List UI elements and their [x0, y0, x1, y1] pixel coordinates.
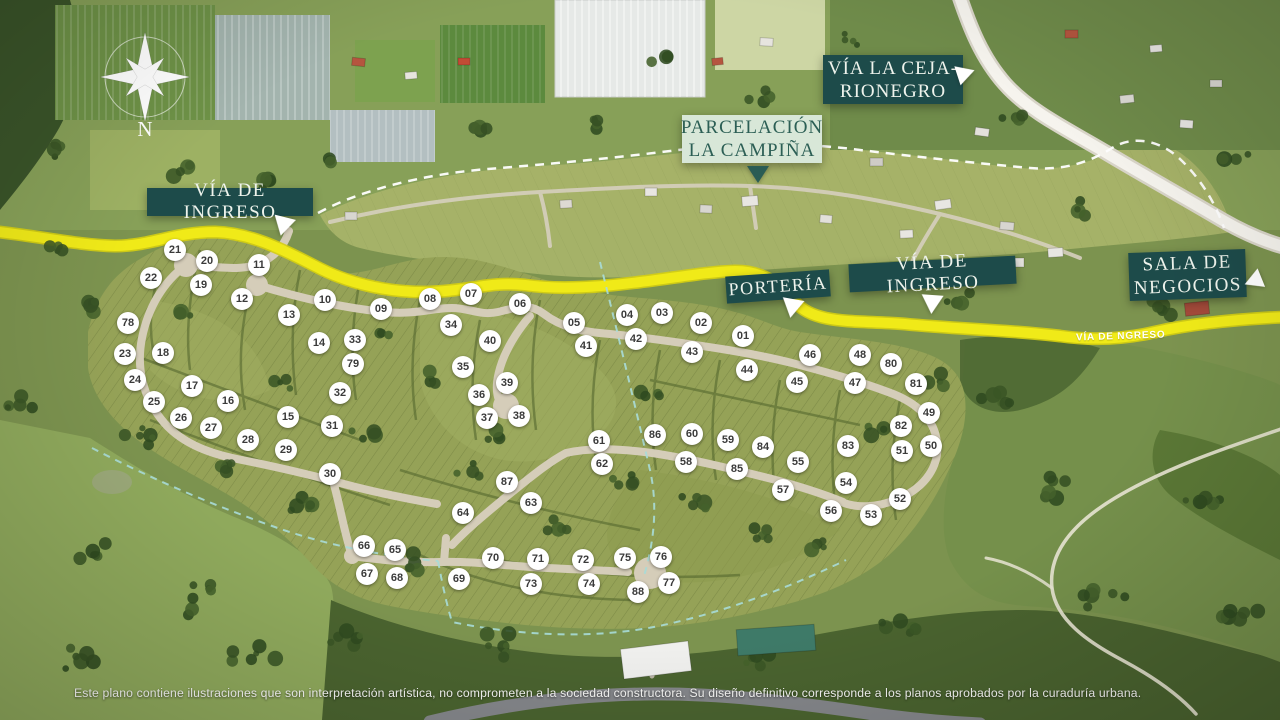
- lot-marker-02: 02: [690, 312, 712, 334]
- lot-marker-50: 50: [920, 435, 942, 457]
- lot-marker-52: 52: [889, 488, 911, 510]
- lot-marker-74: 74: [578, 573, 600, 595]
- label-via-la-ceja-rionegro: VÍA LA CEJA- RIONEGRO: [823, 55, 963, 104]
- lot-marker-41: 41: [575, 335, 597, 357]
- lot-marker-09: 09: [370, 298, 392, 320]
- lot-marker-44: 44: [736, 359, 758, 381]
- lot-marker-11: 11: [248, 254, 270, 276]
- label-text: SALA DE: [1142, 250, 1232, 276]
- aerial-map-background: N: [0, 0, 1280, 720]
- lot-marker-66: 66: [353, 535, 375, 557]
- lot-marker-06: 06: [509, 293, 531, 315]
- lot-marker-61: 61: [588, 430, 610, 452]
- lot-marker-53: 53: [860, 504, 882, 526]
- lot-marker-13: 13: [278, 304, 300, 326]
- lot-marker-12: 12: [231, 288, 253, 310]
- lot-marker-08: 08: [419, 288, 441, 310]
- lot-marker-67: 67: [356, 563, 378, 585]
- lot-marker-37: 37: [476, 407, 498, 429]
- label-text: RIONEGRO: [840, 80, 946, 103]
- lot-marker-80: 80: [880, 353, 902, 375]
- lot-marker-03: 03: [651, 302, 673, 324]
- lot-marker-18: 18: [152, 342, 174, 364]
- lot-marker-78: 78: [117, 312, 139, 334]
- lot-marker-57: 57: [772, 479, 794, 501]
- lot-marker-55: 55: [787, 451, 809, 473]
- lot-marker-49: 49: [918, 402, 940, 424]
- label-text: LA CAMPIÑA: [689, 139, 816, 162]
- lot-marker-46: 46: [799, 344, 821, 366]
- lot-marker-77: 77: [658, 572, 680, 594]
- lot-marker-20: 20: [196, 250, 218, 272]
- lot-marker-35: 35: [452, 356, 474, 378]
- lot-marker-47: 47: [844, 372, 866, 394]
- lot-marker-21: 21: [164, 239, 186, 261]
- lot-marker-42: 42: [625, 328, 647, 350]
- lot-marker-60: 60: [681, 423, 703, 445]
- lot-marker-73: 73: [520, 573, 542, 595]
- label-text: NEGOCIOS: [1134, 273, 1243, 300]
- lot-marker-07: 07: [460, 283, 482, 305]
- lot-marker-25: 25: [143, 391, 165, 413]
- lot-marker-24: 24: [124, 369, 146, 391]
- lot-marker-34: 34: [440, 314, 462, 336]
- lot-marker-45: 45: [786, 371, 808, 393]
- label-via-de-ingreso-top: VÍA DE INGRESO: [147, 188, 313, 216]
- label-text: PORTERÍA: [728, 273, 828, 301]
- lot-marker-10: 10: [314, 289, 336, 311]
- compass-north-letter: N: [137, 117, 152, 141]
- lot-marker-75: 75: [614, 547, 636, 569]
- label-via-de-ingreso-mid: VÍA DE INGRESO: [848, 256, 1016, 293]
- lot-marker-36: 36: [468, 384, 490, 406]
- lot-marker-40: 40: [479, 330, 501, 352]
- lot-marker-51: 51: [891, 440, 913, 462]
- lot-marker-87: 87: [496, 471, 518, 493]
- lot-marker-68: 68: [386, 567, 408, 589]
- lot-marker-64: 64: [452, 502, 474, 524]
- label-text: VÍA DE INGRESO: [848, 248, 1017, 301]
- lot-marker-04: 04: [616, 304, 638, 326]
- lot-marker-19: 19: [190, 274, 212, 296]
- lot-marker-29: 29: [275, 439, 297, 461]
- lot-marker-14: 14: [308, 332, 330, 354]
- lot-marker-43: 43: [681, 341, 703, 363]
- lot-marker-26: 26: [170, 407, 192, 429]
- lot-marker-05: 05: [563, 312, 585, 334]
- lot-marker-82: 82: [890, 415, 912, 437]
- lot-marker-65: 65: [384, 539, 406, 561]
- lot-marker-58: 58: [675, 451, 697, 473]
- lot-marker-27: 27: [200, 417, 222, 439]
- lot-marker-59: 59: [717, 429, 739, 451]
- lot-marker-38: 38: [508, 405, 530, 427]
- parcelacion-pointer-icon: [747, 166, 769, 183]
- lot-marker-48: 48: [849, 344, 871, 366]
- lot-marker-69: 69: [448, 568, 470, 590]
- lot-marker-70: 70: [482, 547, 504, 569]
- via-ingreso-arrow-icon: [920, 294, 943, 314]
- lot-marker-85: 85: [726, 458, 748, 480]
- lot-marker-84: 84: [752, 436, 774, 458]
- lot-marker-15: 15: [277, 406, 299, 428]
- label-text: PARCELACIÓN: [681, 116, 823, 139]
- lot-marker-01: 01: [732, 325, 754, 347]
- label-text: VÍA LA CEJA-: [828, 57, 958, 80]
- lot-marker-72: 72: [572, 549, 594, 571]
- lot-marker-17: 17: [181, 375, 203, 397]
- lot-marker-88: 88: [627, 581, 649, 603]
- lot-marker-39: 39: [496, 372, 518, 394]
- lot-marker-22: 22: [140, 267, 162, 289]
- disclaimer-text: Este plano contiene ilustraciones que so…: [74, 686, 1244, 700]
- lot-marker-79: 79: [342, 353, 364, 375]
- lot-marker-30: 30: [319, 463, 341, 485]
- lot-marker-33: 33: [344, 329, 366, 351]
- lot-marker-56: 56: [820, 500, 842, 522]
- lot-marker-76: 76: [650, 546, 672, 568]
- lot-marker-23: 23: [114, 343, 136, 365]
- masterplan-map: N 01020304050607080910111213141516171819…: [0, 0, 1280, 720]
- label-parcelacion-la-campina: PARCELACIÓN LA CAMPIÑA: [682, 115, 822, 163]
- porteria-arrow-icon: [780, 297, 805, 320]
- lot-marker-28: 28: [237, 429, 259, 451]
- label-sala-de-negocios: SALA DE NEGOCIOS: [1128, 249, 1247, 301]
- lot-marker-32: 32: [329, 382, 351, 404]
- lot-marker-16: 16: [217, 390, 239, 412]
- lot-marker-71: 71: [527, 548, 549, 570]
- lot-marker-86: 86: [644, 424, 666, 446]
- lot-marker-83: 83: [837, 435, 859, 457]
- lot-marker-31: 31: [321, 415, 343, 437]
- lot-marker-62: 62: [591, 453, 613, 475]
- lot-marker-63: 63: [520, 492, 542, 514]
- lot-marker-54: 54: [835, 472, 857, 494]
- lot-marker-81: 81: [905, 373, 927, 395]
